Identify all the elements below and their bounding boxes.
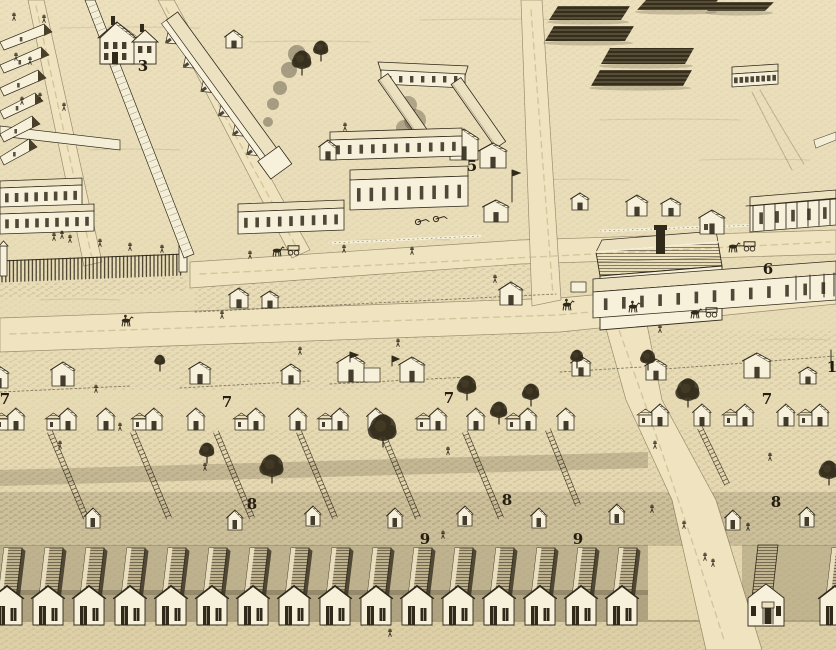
lumber-pile	[547, 6, 630, 25]
map-label-5-1: 5	[467, 159, 477, 174]
map-label-7-6: 7	[762, 392, 772, 407]
lumber-pile	[589, 70, 692, 91]
map-label-1-12: 1	[827, 360, 836, 375]
garrison-barracks	[0, 178, 94, 234]
map-label-9-10: 9	[420, 532, 430, 547]
lumber-pile	[543, 26, 634, 46]
lumber-office	[732, 64, 778, 87]
map-label-9-11: 9	[573, 532, 583, 547]
map-label-7-3: 7	[0, 392, 10, 407]
barracks	[0, 178, 82, 208]
map-engraving	[0, 0, 836, 650]
map-label-8-8: 8	[502, 493, 512, 508]
birdseye-town-map: 3567777888991	[0, 0, 836, 650]
store	[750, 190, 836, 232]
map-label-7-4: 7	[222, 395, 232, 410]
lumber-pile	[635, 0, 718, 15]
map-label-8-9: 8	[771, 495, 781, 510]
mess-hall	[330, 128, 462, 160]
lumber-pile	[599, 48, 694, 69]
barracks	[0, 204, 94, 234]
map-label-7-5: 7	[444, 391, 454, 406]
quarters	[238, 200, 344, 234]
storehouse	[350, 166, 468, 210]
porch-store	[746, 190, 836, 232]
map-label-6-2: 6	[763, 262, 773, 277]
lumber-pile	[705, 2, 774, 16]
map-label-3-0: 3	[138, 59, 148, 74]
map-label-8-7: 8	[247, 497, 257, 512]
